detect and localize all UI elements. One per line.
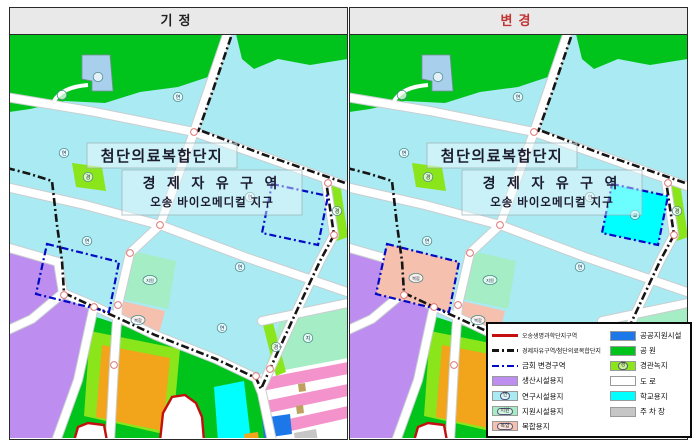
- parcel-badge-label: 경: [675, 208, 680, 215]
- parcel-badge-label: 연: [62, 149, 67, 157]
- road-junction: [431, 304, 438, 311]
- legend-line-sample: [492, 334, 518, 337]
- panel-title-before: 기정: [10, 8, 347, 35]
- parcel-badge: [57, 90, 67, 99]
- parcel-badge-label: 지: [306, 334, 311, 342]
- legend-row: 공 원: [610, 343, 688, 358]
- row-connector: [298, 383, 306, 392]
- legend-row: 주 차 장: [610, 404, 688, 419]
- legend-row: 금회 변경구역: [492, 358, 610, 373]
- legend-row: 오송생명과학단지구역: [492, 328, 610, 343]
- legend-label: 주 차 장: [640, 406, 665, 417]
- legend-swatch-badge: 지원: [497, 408, 512, 416]
- parcel-badge-label: 경: [335, 208, 340, 215]
- legend-label: 지원시설용지: [522, 406, 563, 417]
- road-junction: [115, 302, 122, 309]
- legend-swatch-badge: 복합: [497, 423, 512, 431]
- road-junction: [497, 222, 504, 229]
- legend-row: 연연구시설용지: [492, 389, 610, 404]
- road-junction: [455, 302, 462, 309]
- road-junction: [665, 180, 672, 187]
- label-district: 오송 바이오메디컬 지구: [150, 195, 274, 209]
- parcel-badge-label: 연: [238, 263, 243, 271]
- legend-label: 공 원: [640, 345, 656, 356]
- parcel-badge: [433, 72, 443, 81]
- legend-column-2: 공공지원시설공 원경경관녹지도 로학교용지주 차 장: [610, 328, 688, 434]
- legend-label: 학교용지: [640, 391, 668, 402]
- legend-label: 복합용지: [522, 421, 550, 432]
- legend-row: 경제자유구역/첨단의료복합단지: [492, 343, 610, 358]
- legend-swatch-badge: 경: [618, 362, 629, 370]
- parcel-badge-label: 지원: [486, 277, 494, 284]
- legend-color-swatch: 복합: [492, 421, 518, 431]
- panel-title-after: 변경: [350, 8, 687, 35]
- road-junction: [467, 250, 474, 257]
- legend-row: 도 로: [610, 374, 688, 389]
- legend-row: 경경관녹지: [610, 358, 688, 373]
- legend-label: 공공지원시설: [640, 330, 681, 341]
- legend-label: 금회 변경구역: [522, 360, 565, 371]
- legend-color-swatch: [610, 391, 636, 401]
- road-junction: [401, 292, 408, 299]
- legend-color-swatch: [610, 346, 636, 356]
- label-complex: 첨단의료복합단지: [441, 147, 563, 165]
- legend-row: 지원지원시설용지: [492, 404, 610, 419]
- road-junction: [111, 362, 118, 369]
- parcel-badge-label: 지원: [146, 277, 154, 284]
- map-before: 연연연연연연지원지복합경경경첨단의료복합단지경 제 자 유 구 역오송 바이오메…: [10, 35, 347, 438]
- road-junction: [451, 362, 458, 369]
- parcel-badge-label: 연: [578, 263, 583, 271]
- parcel-badge-label: 연: [425, 237, 430, 245]
- legend-row: 학교용지: [610, 389, 688, 404]
- label-district: 오송 바이오메디컬 지구: [490, 195, 614, 209]
- parcel-badge-label: 경: [86, 174, 91, 181]
- road-junction: [671, 232, 678, 239]
- parcel-badge: [397, 90, 407, 99]
- panel-before: 기정 연연연연연연지원지복합경경경첨단의료복합단지경 제 자 유 구 역오송 바…: [9, 7, 348, 440]
- parcel-badge-label: 경: [426, 174, 431, 181]
- legend-label: 오송생명과학단지구역: [522, 331, 577, 340]
- legend-row: 생산시설용지: [492, 373, 610, 388]
- legend-color-swatch: 지원: [492, 406, 518, 416]
- parcel-badge: [93, 72, 103, 81]
- legend-row: 복합복합용지: [492, 419, 610, 434]
- legend-label: 연구시설용지: [522, 391, 563, 402]
- parcel-badge-label: 연: [402, 149, 407, 157]
- zoning-map-svg: 연연연연연연지원지복합경경경첨단의료복합단지경 제 자 유 구 역오송 바이오메…: [10, 35, 347, 438]
- parcel-badge-label: 복합: [134, 317, 142, 324]
- legend-label: 경관녹지: [640, 360, 668, 371]
- parcel-badge-label: 경: [274, 344, 279, 351]
- road-junction: [267, 366, 274, 373]
- row-connector: [296, 405, 304, 414]
- legend-label: 생산시설용지: [522, 375, 563, 386]
- legend-label: 경제자유구역/첨단의료복합단지: [522, 346, 601, 355]
- road-junction: [157, 222, 164, 229]
- road-junction: [127, 250, 134, 257]
- parcel-badge-label: 복합: [474, 317, 482, 324]
- legend-color-swatch: [610, 376, 636, 386]
- legend-color-swatch: [610, 407, 636, 417]
- legend-column-1: 오송생명과학단지구역경제자유구역/첨단의료복합단지금회 변경구역생산시설용지연연…: [492, 328, 610, 434]
- label-complex: 첨단의료복합단지: [101, 147, 223, 165]
- label-zone: 경 제 자 유 구 역: [483, 175, 622, 192]
- legend-color-swatch: 연: [492, 391, 518, 401]
- road-junction: [253, 373, 260, 380]
- parcel-badge-label: 연: [220, 324, 225, 332]
- legend-line-sample: [492, 349, 518, 352]
- label-zone: 경 제 자 유 구 역: [143, 175, 282, 192]
- legend-color-swatch: 경: [610, 361, 636, 371]
- road-junction: [325, 180, 332, 187]
- parcel-badge-label: 연: [516, 93, 521, 101]
- legend: 오송생명과학단지구역경제자유구역/첨단의료복합단지금회 변경구역생산시설용지연연…: [486, 322, 692, 438]
- road-junction: [191, 129, 198, 136]
- road-junction: [91, 304, 98, 311]
- legend-color-swatch: [610, 331, 636, 341]
- parcel-badge-label: 연: [176, 93, 181, 101]
- legend-swatch-badge: 연: [500, 392, 511, 400]
- road-junction: [61, 292, 68, 299]
- legend-color-swatch: [492, 376, 518, 386]
- road-junction: [531, 129, 538, 136]
- parcel-badge-label: 복합: [412, 275, 420, 282]
- legend-row: 공공지원시설: [610, 328, 688, 343]
- comparison-figure: 기정 연연연연연연지원지복합경경경첨단의료복합단지경 제 자 유 구 역오송 바…: [0, 0, 699, 445]
- road-junction: [331, 232, 338, 239]
- legend-label: 도 로: [640, 376, 656, 387]
- parcel-badge-label: 연: [85, 237, 90, 245]
- legend-line-sample: [492, 365, 518, 368]
